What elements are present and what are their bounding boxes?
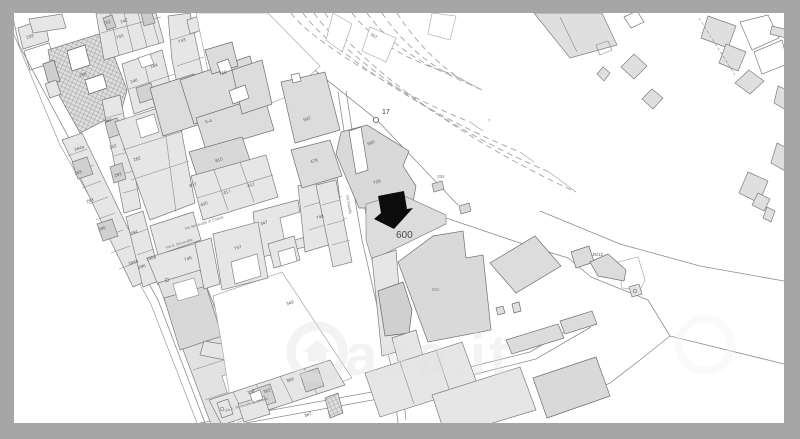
svg-text:17: 17 bbox=[382, 109, 390, 116]
svg-text:358: 358 bbox=[437, 174, 445, 179]
svg-text:asa.it: asa.it bbox=[345, 323, 511, 388]
svg-text:J6/12: J6/12 bbox=[592, 252, 604, 257]
svg-text:862: 862 bbox=[432, 287, 440, 292]
svg-text:600: 600 bbox=[396, 230, 413, 241]
